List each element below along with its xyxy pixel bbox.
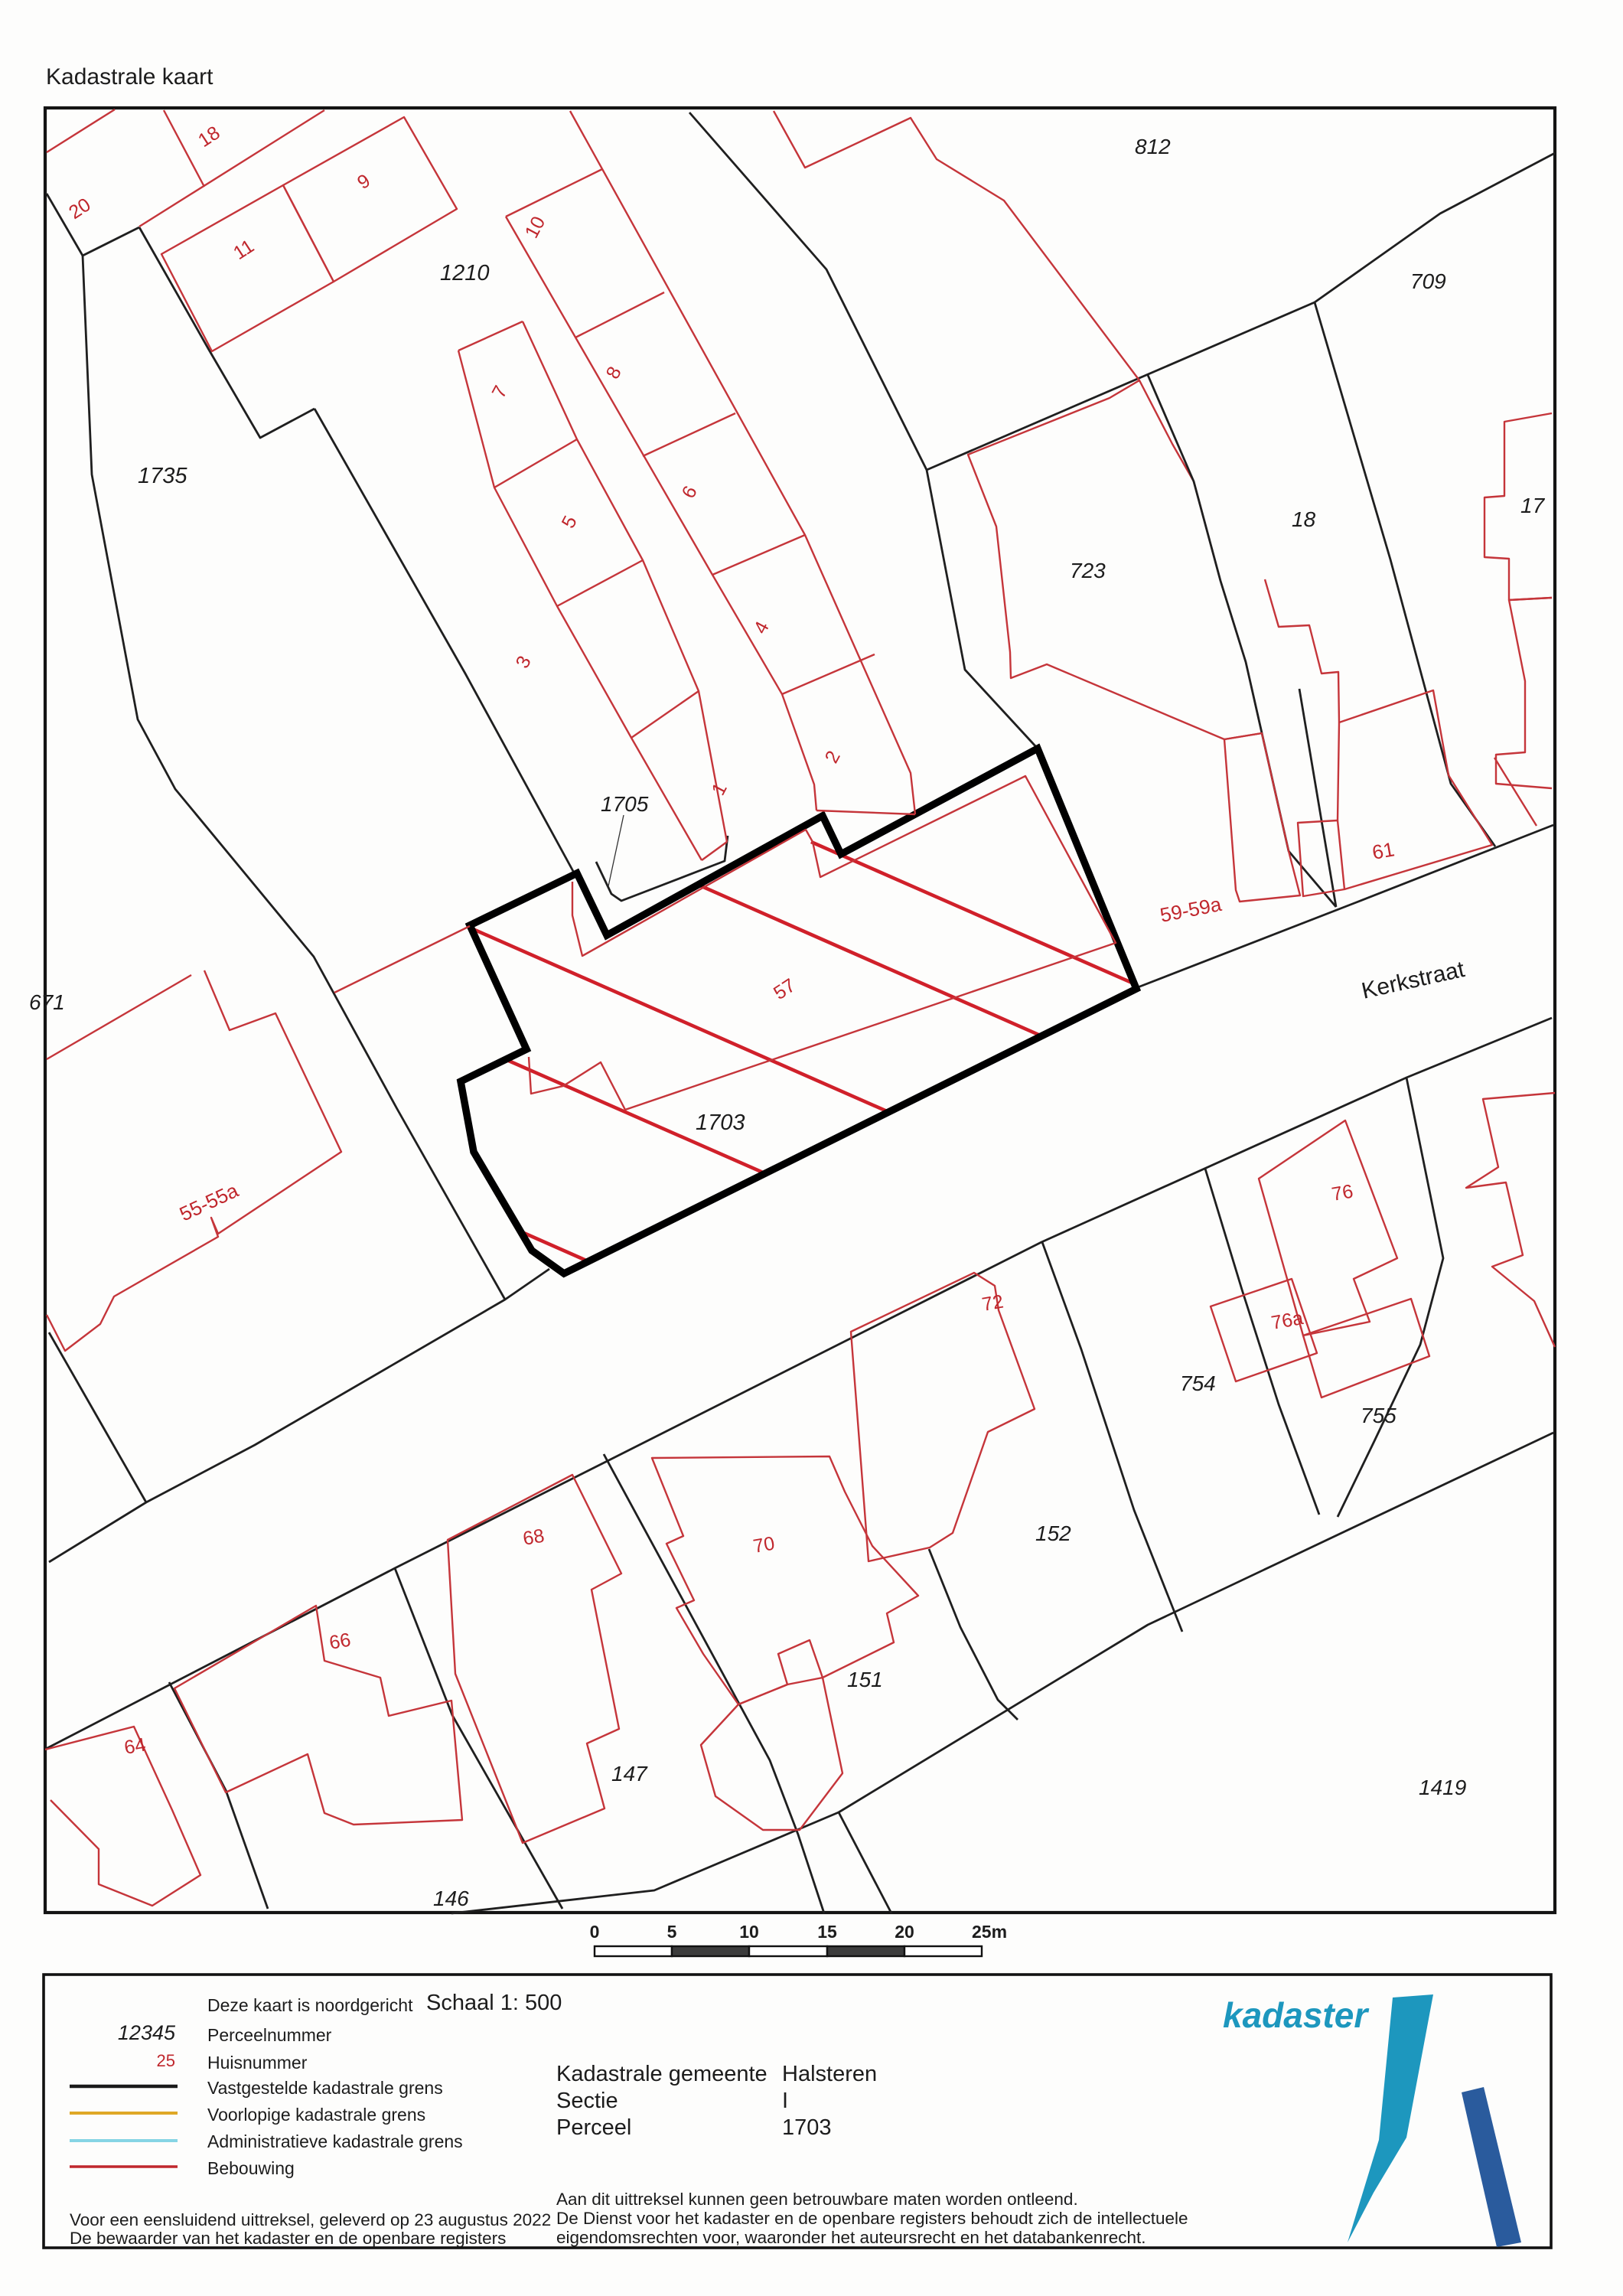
svg-text:812: 812 (1135, 135, 1171, 158)
svg-text:151: 151 (847, 1668, 883, 1691)
svg-text:25m: 25m (972, 1922, 1007, 1942)
svg-text:Administratieve kadastrale gre: Administratieve kadastrale grens (207, 2131, 463, 2151)
svg-text:755: 755 (1361, 1404, 1396, 1427)
svg-text:Kadastrale gemeente: Kadastrale gemeente (556, 2062, 768, 2086)
svg-text:kadaster: kadaster (1223, 1995, 1369, 2035)
svg-text:1705: 1705 (601, 792, 649, 816)
svg-text:754: 754 (1180, 1371, 1216, 1395)
svg-text:15: 15 (817, 1922, 837, 1942)
svg-text:147: 147 (611, 1762, 648, 1786)
svg-text:Halsteren: Halsteren (782, 2062, 877, 2086)
svg-text:Vastgestelde kadastrale grens: Vastgestelde kadastrale grens (207, 2078, 443, 2098)
svg-text:18: 18 (1292, 507, 1316, 531)
svg-text:5: 5 (667, 1922, 677, 1942)
svg-text:25: 25 (157, 2051, 175, 2070)
svg-text:146: 146 (433, 1887, 469, 1910)
svg-text:1703: 1703 (782, 2115, 832, 2140)
svg-text:66: 66 (328, 1629, 352, 1654)
svg-text:Perceelnummer: Perceelnummer (207, 2025, 332, 2045)
svg-text:Sectie: Sectie (556, 2089, 618, 2113)
svg-text:Deze kaart is noordgericht: Deze kaart is noordgericht (207, 1995, 413, 2015)
svg-text:76: 76 (1330, 1181, 1354, 1205)
svg-text:0: 0 (590, 1922, 600, 1942)
svg-text:70: 70 (751, 1533, 776, 1557)
svg-text:20: 20 (895, 1922, 914, 1942)
svg-text:152: 152 (1035, 1521, 1071, 1545)
svg-text:1210: 1210 (440, 261, 490, 285)
svg-text:De Dienst voor het kadaster en: De Dienst voor het kadaster en de openba… (556, 2209, 1188, 2228)
svg-text:Perceel: Perceel (556, 2115, 631, 2140)
svg-text:1419: 1419 (1419, 1776, 1466, 1799)
svg-text:eigendomsrechten voor, waarond: eigendomsrechten voor, waaronder het aut… (556, 2228, 1146, 2247)
svg-text:10: 10 (739, 1922, 759, 1942)
svg-text:1735: 1735 (138, 464, 187, 488)
svg-text:Voorlopige kadastrale grens: Voorlopige kadastrale grens (207, 2105, 425, 2125)
svg-text:72: 72 (980, 1291, 1005, 1316)
svg-text:Schaal 1: 500: Schaal 1: 500 (426, 1991, 562, 2015)
svg-text:Voor een eensluidend uittrekse: Voor een eensluidend uittreksel, gelever… (70, 2210, 551, 2229)
svg-text:671: 671 (29, 990, 65, 1014)
svg-text:Bebouwing: Bebouwing (207, 2158, 295, 2178)
svg-text:723: 723 (1070, 559, 1106, 582)
svg-text:709: 709 (1410, 269, 1446, 293)
svg-text:I: I (782, 2089, 788, 2113)
svg-text:Aan dit uittreksel kunnen geen: Aan dit uittreksel kunnen geen betrouwba… (556, 2190, 1078, 2209)
svg-text:12345: 12345 (118, 2021, 176, 2044)
svg-text:1703: 1703 (696, 1110, 745, 1135)
svg-text:Huisnummer: Huisnummer (207, 2053, 308, 2073)
svg-text:De bewaarder van het kadaster: De bewaarder van het kadaster en de open… (70, 2229, 506, 2248)
svg-text:64: 64 (122, 1733, 147, 1758)
svg-text:68: 68 (521, 1525, 546, 1550)
svg-text:Kadastrale kaart: Kadastrale kaart (46, 64, 213, 90)
svg-text:17: 17 (1520, 494, 1546, 517)
svg-text:61: 61 (1370, 837, 1396, 864)
